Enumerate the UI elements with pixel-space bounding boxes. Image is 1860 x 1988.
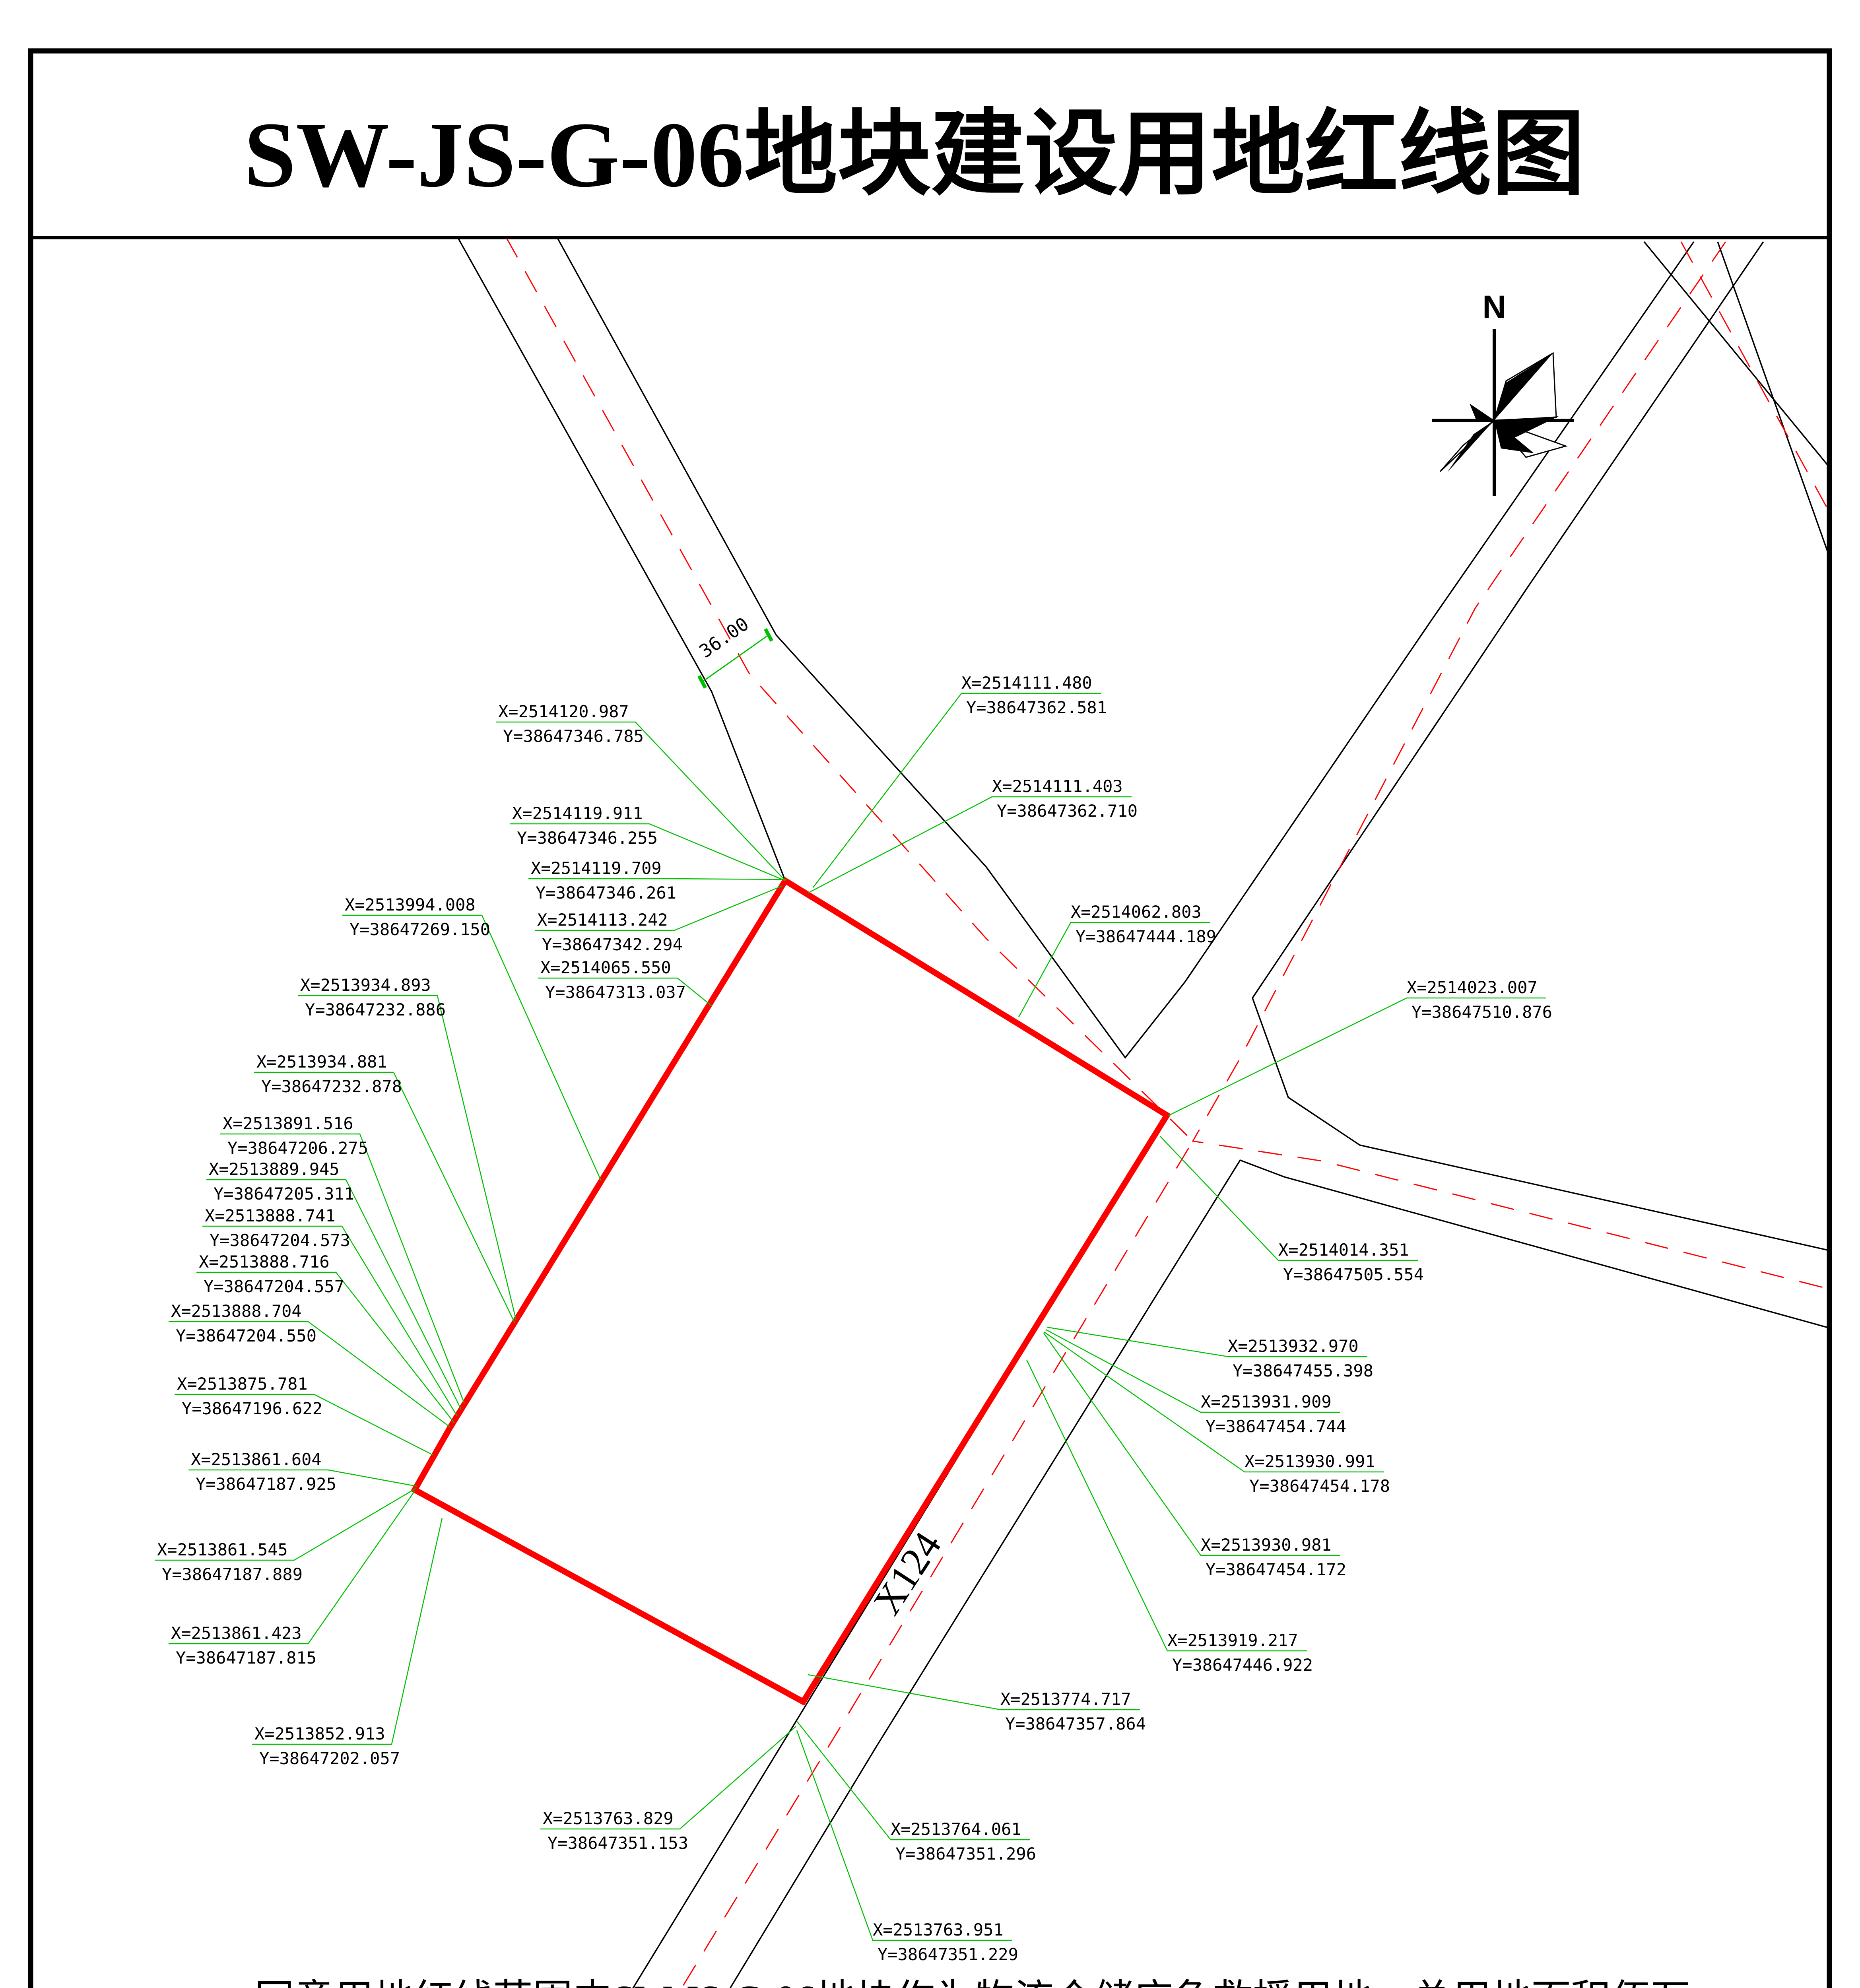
corner-road-edge-1 [1644, 242, 1829, 467]
survey-y-value: Y=38647362.581 [966, 698, 1107, 717]
survey-x-value: X=2513889.945 [209, 1159, 340, 1179]
survey-x-value: X=2514023.007 [1407, 978, 1538, 997]
survey-y-value: Y=38647196.622 [182, 1399, 322, 1418]
survey-y-value: Y=38647351.229 [878, 1945, 1018, 1964]
survey-y-value: Y=38647204.550 [176, 1326, 316, 1345]
survey-x-value: X=2514111.480 [961, 673, 1092, 693]
survey-x-value: X=2513934.881 [256, 1052, 387, 1072]
survey-point-label: X=2513764.061Y=38647351.296 [797, 1722, 1036, 1864]
leader-line [342, 915, 601, 1181]
survey-x-value: X=2513930.991 [1245, 1452, 1375, 1471]
survey-y-value: Y=38647206.275 [227, 1138, 368, 1158]
survey-y-value: Y=38647205.311 [214, 1184, 354, 1204]
survey-x-value: X=2513888.716 [199, 1252, 330, 1272]
survey-x-value: X=2513919.217 [1167, 1631, 1298, 1650]
sheet-border [31, 51, 1829, 1988]
survey-point-label: X=2514111.403Y=38647362.710 [808, 777, 1138, 893]
north-arrow: N [1432, 289, 1574, 496]
survey-point-label: X=2513932.970Y=38647455.398 [1047, 1327, 1373, 1380]
road-x124-se-edge [414, 1160, 1829, 1988]
survey-point-label: X=2514120.987Y=38647346.785 [496, 702, 785, 881]
survey-point-label: X=2513861.604Y=38647187.925 [188, 1450, 417, 1494]
red-line-boundary [415, 881, 1167, 1702]
survey-x-value: X=2514014.351 [1278, 1240, 1409, 1260]
survey-y-value: Y=38647444.189 [1076, 927, 1216, 946]
survey-x-value: X=2513774.717 [1000, 1689, 1131, 1709]
survey-y-value: Y=38647351.296 [895, 1844, 1036, 1864]
north-rose-black-sw [1447, 420, 1494, 472]
survey-point-label: X=2514014.351Y=38647505.554 [1160, 1136, 1424, 1284]
survey-x-value: X=2513934.893 [300, 975, 431, 995]
survey-y-value: Y=38647313.037 [545, 982, 686, 1002]
survey-x-value: X=2513888.704 [171, 1301, 302, 1321]
survey-y-value: Y=38647269.150 [349, 920, 490, 939]
leader-line [528, 879, 786, 879]
road-label-x124: X124 [865, 1524, 950, 1622]
corner-road-edge-2 [1718, 242, 1829, 557]
survey-x-value: X=2514113.242 [537, 910, 668, 930]
drawing-canvas: SW-JS-G-06地块建设用地红线图 [0, 0, 1860, 1988]
survey-x-value: X=2513852.913 [254, 1724, 385, 1743]
leader-line [298, 996, 516, 1320]
survey-labels: X=2514120.987Y=38647346.785X=2514119.911… [155, 673, 1552, 1964]
drawing-sheet: SW-JS-G-06地块建设用地红线图 [0, 0, 1860, 1988]
survey-x-value: X=2513861.604 [191, 1450, 322, 1469]
survey-y-value: Y=38647202.057 [259, 1749, 400, 1768]
survey-y-value: Y=38647232.886 [305, 1000, 446, 1019]
survey-y-value: Y=38647346.785 [503, 726, 644, 746]
survey-x-value: X=2514065.550 [540, 958, 671, 977]
survey-point-label: X=2514062.803Y=38647444.189 [1019, 902, 1216, 1017]
dim-value-top: 36.00 [695, 613, 753, 662]
survey-y-value: Y=38647346.255 [517, 828, 658, 848]
sheet-title: SW-JS-G-06地块建设用地红线图 [244, 103, 1585, 206]
survey-y-value: Y=38647357.864 [1005, 1714, 1146, 1734]
survey-y-value: Y=38647187.815 [176, 1648, 316, 1668]
survey-y-value: Y=38647505.554 [1283, 1265, 1424, 1284]
note-paragraph: 同意用地红线范围内SW-JS-G-06地块作为物流仓储应急救援用地，总用地面积伍… [169, 1977, 1690, 1988]
survey-y-value: Y=38647454.178 [1249, 1476, 1390, 1496]
survey-point-label: X=2514065.550Y=38647313.037 [538, 958, 712, 1006]
north-label: N [1482, 289, 1506, 325]
survey-y-value: Y=38647454.744 [1206, 1417, 1346, 1436]
road-width-dim-top: 36.00 [695, 613, 772, 688]
survey-x-value: X=2513763.951 [873, 1920, 1004, 1939]
survey-x-value: X=2513764.061 [891, 1819, 1021, 1839]
survey-x-value: X=2513875.781 [177, 1374, 308, 1394]
survey-point-label: X=2513763.829Y=38647351.153 [540, 1726, 796, 1853]
survey-x-value: X=2513861.423 [171, 1623, 302, 1643]
survey-y-value: Y=38647187.925 [196, 1474, 336, 1494]
survey-point-label: X=2514023.007Y=38647510.876 [1168, 978, 1552, 1116]
dim-tick [765, 629, 772, 641]
north-rose-black-w [1470, 404, 1494, 420]
survey-y-value: Y=38647346.261 [536, 883, 676, 903]
survey-x-value: X=2513932.970 [1228, 1336, 1359, 1356]
survey-y-value: Y=38647455.398 [1233, 1361, 1373, 1380]
survey-y-value: Y=38647446.922 [1172, 1655, 1313, 1675]
survey-y-value: Y=38647204.573 [210, 1231, 350, 1250]
survey-point-label: X=2513861.545Y=38647187.889 [155, 1489, 415, 1584]
survey-x-value: X=2514111.403 [992, 777, 1123, 796]
survey-y-value: Y=38647232.878 [261, 1077, 402, 1096]
survey-x-value: X=2514119.911 [512, 804, 643, 823]
survey-x-value: X=2514120.987 [498, 702, 629, 721]
survey-y-value: Y=38647351.153 [548, 1833, 688, 1853]
survey-y-value: Y=38647454.172 [1206, 1560, 1346, 1579]
survey-x-value: X=2513763.829 [543, 1809, 674, 1828]
survey-x-value: X=2513994.008 [345, 895, 476, 914]
road-nw-west-edge [457, 237, 785, 881]
survey-y-value: Y=38647362.710 [997, 801, 1138, 821]
survey-x-value: X=2513931.909 [1201, 1392, 1332, 1411]
survey-x-value: X=2514062.803 [1071, 902, 1202, 922]
survey-x-value: X=2514119.709 [531, 858, 662, 878]
north-rose-white-ne [1494, 353, 1556, 420]
survey-y-value: Y=38647204.557 [204, 1277, 344, 1296]
survey-y-value: Y=38647342.294 [542, 935, 683, 954]
road-x124-nw-edge [320, 1115, 1167, 1988]
survey-x-value: X=2513861.545 [157, 1540, 288, 1559]
survey-y-value: Y=38647510.876 [1412, 1002, 1552, 1022]
survey-x-value: X=2513888.741 [205, 1206, 336, 1225]
survey-x-value: X=2513930.981 [1201, 1535, 1332, 1555]
map-area: N 36.00 36.00 X124 X=2514120.987Y=386473… [11, 237, 1829, 1988]
survey-y-value: Y=38647187.889 [162, 1565, 303, 1584]
survey-x-value: X=2513891.516 [223, 1114, 353, 1133]
note-line-1: 同意用地红线范围内SW-JS-G-06地块作为物流仓储应急救援用地，总用地面积伍… [254, 1977, 1690, 1988]
survey-point-label: X=2513774.717Y=38647357.864 [808, 1675, 1146, 1734]
